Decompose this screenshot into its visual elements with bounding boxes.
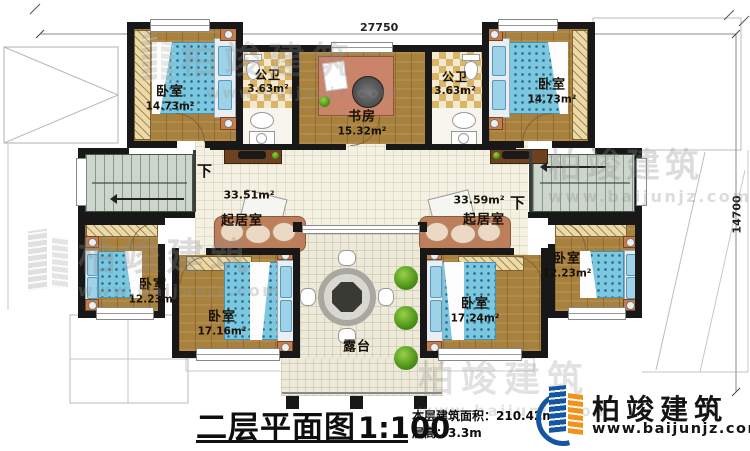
washing-machine-door xyxy=(256,133,267,144)
wall xyxy=(293,222,302,232)
terrace-floor-lower xyxy=(281,358,443,396)
wall xyxy=(78,148,129,154)
stair-arrow-head xyxy=(110,194,117,204)
window xyxy=(150,19,210,32)
company-website: www.baijunjz.com xyxy=(592,421,750,437)
plant-icon xyxy=(394,346,418,370)
plant-icon xyxy=(319,96,330,107)
room-label-bedroom-mid-left: 卧室 12.23m² xyxy=(129,279,178,306)
pillow xyxy=(280,300,292,332)
stair-arrow-head xyxy=(540,162,547,172)
room-label-living-right: 起居室 xyxy=(463,214,505,229)
wall xyxy=(425,45,432,150)
room-name: 露台 xyxy=(343,341,371,356)
pillow xyxy=(492,80,506,110)
pillow xyxy=(218,46,232,76)
room-area: 3.63m² xyxy=(434,85,475,97)
room-label-bedroom-bottom-left: 卧室 17.16m² xyxy=(198,311,247,338)
sofa-cushion xyxy=(425,222,449,242)
tv xyxy=(502,151,530,159)
title-underline xyxy=(196,440,408,443)
room-area: 3.63m² xyxy=(247,83,288,95)
stair-landing-divider xyxy=(92,182,187,184)
wall xyxy=(206,248,300,255)
chair xyxy=(378,288,394,306)
stair-railing xyxy=(529,150,532,212)
stair-direction-arrow xyxy=(116,198,184,200)
room-name: 卧室 xyxy=(538,79,566,94)
stairs-down-label-right: 下 xyxy=(510,192,525,213)
terrace-sliding-door xyxy=(302,225,420,234)
pillow xyxy=(87,254,98,276)
window xyxy=(76,158,87,206)
wall xyxy=(420,248,427,358)
chair xyxy=(300,288,316,306)
living-left-area: 33.51m² xyxy=(223,189,274,202)
wall xyxy=(432,144,516,150)
nightstand xyxy=(85,236,99,248)
plant-icon xyxy=(394,306,418,330)
room-label-study: 书房 15.32m² xyxy=(338,111,387,138)
floor-plan-canvas: 卧室 14.73m² 公卫 3.63m² 书房 15.32m² 公卫 3.63m… xyxy=(0,0,750,451)
wall xyxy=(548,218,642,225)
wall xyxy=(482,22,489,148)
room-name: 公卫 xyxy=(255,69,281,83)
sink xyxy=(452,112,476,129)
window xyxy=(196,348,280,361)
window xyxy=(568,307,626,320)
room-area: 15.32m² xyxy=(338,125,387,137)
dining-table-center xyxy=(332,282,362,312)
window xyxy=(438,348,522,361)
room-name: 卧室 xyxy=(208,311,236,326)
wall xyxy=(420,248,514,255)
window xyxy=(498,19,558,32)
room-label-living-left: 起居室 xyxy=(221,215,263,230)
wall xyxy=(292,144,346,150)
window xyxy=(636,158,647,206)
stair-direction-arrow xyxy=(546,166,606,168)
room-area: 17.24m² xyxy=(451,312,500,324)
stair-railing xyxy=(193,150,196,212)
room-name: 书房 xyxy=(348,111,376,126)
pillow xyxy=(430,300,442,332)
room-area: 12.23m² xyxy=(543,267,592,279)
toilet-tank xyxy=(244,54,262,61)
tv xyxy=(238,151,266,159)
plant-icon xyxy=(493,152,500,159)
pillow xyxy=(492,46,506,76)
office-chair xyxy=(352,76,384,108)
toilet-tank xyxy=(462,54,480,61)
room-name: 公卫 xyxy=(442,71,468,85)
company-logo-icon xyxy=(536,384,590,442)
stair-landing-divider xyxy=(540,182,630,184)
room-name: 起居室 xyxy=(463,214,505,229)
dimension-right: 14700 xyxy=(731,190,744,240)
wall xyxy=(78,218,165,225)
room-name: 卧室 xyxy=(139,279,167,294)
logo-building-blue xyxy=(549,385,566,433)
wall xyxy=(127,141,177,148)
dimension-top: 27750 xyxy=(360,21,398,34)
room-name: 卧室 xyxy=(156,86,184,101)
room-label-bedroom-top-left: 卧室 14.73m² xyxy=(146,86,195,113)
room-label-bedroom-top-right: 卧室 14.73m² xyxy=(528,79,577,106)
wall xyxy=(552,141,595,148)
plant-icon xyxy=(272,152,279,159)
wall xyxy=(588,22,595,148)
room-label-bathroom-right: 公卫 3.63m² xyxy=(434,71,475,97)
wall xyxy=(386,144,432,150)
room-name: 卧室 xyxy=(461,298,489,313)
window xyxy=(96,307,154,320)
pillow xyxy=(430,266,442,298)
wall xyxy=(127,22,134,148)
wall xyxy=(635,218,642,318)
sink xyxy=(250,112,274,129)
chair xyxy=(338,250,356,266)
room-label-bedroom-mid-right: 卧室 12.23m² xyxy=(543,253,592,280)
room-name: 起居室 xyxy=(221,215,263,230)
wall xyxy=(293,248,300,358)
plant-icon xyxy=(394,266,418,290)
pillow xyxy=(218,80,232,110)
room-area: 17.16m² xyxy=(198,325,247,337)
wall xyxy=(78,218,85,318)
room-area: 14.73m² xyxy=(146,100,195,112)
stairs-down-label-left: 下 xyxy=(197,160,212,181)
room-area: 14.73m² xyxy=(528,93,577,105)
room-area: 12.23m² xyxy=(129,293,178,305)
logo-building-orange xyxy=(568,393,583,435)
room-label-bedroom-bottom-right: 卧室 17.24m² xyxy=(451,298,500,325)
wall xyxy=(236,22,243,148)
terrace-railing xyxy=(282,392,442,394)
nightstand xyxy=(220,28,237,41)
wall xyxy=(292,45,299,150)
living-right-area: 33.59m² xyxy=(453,194,504,207)
desk-paper xyxy=(322,61,348,92)
room-label-bathroom-left: 公卫 3.63m² xyxy=(247,69,288,95)
room-label-terrace: 露台 xyxy=(343,341,371,356)
nightstand xyxy=(220,117,237,130)
wall xyxy=(210,144,294,150)
window xyxy=(331,42,393,53)
washing-machine-door xyxy=(458,133,469,144)
pillow xyxy=(280,266,292,298)
pillow xyxy=(87,277,98,299)
room-name: 卧室 xyxy=(553,253,581,268)
